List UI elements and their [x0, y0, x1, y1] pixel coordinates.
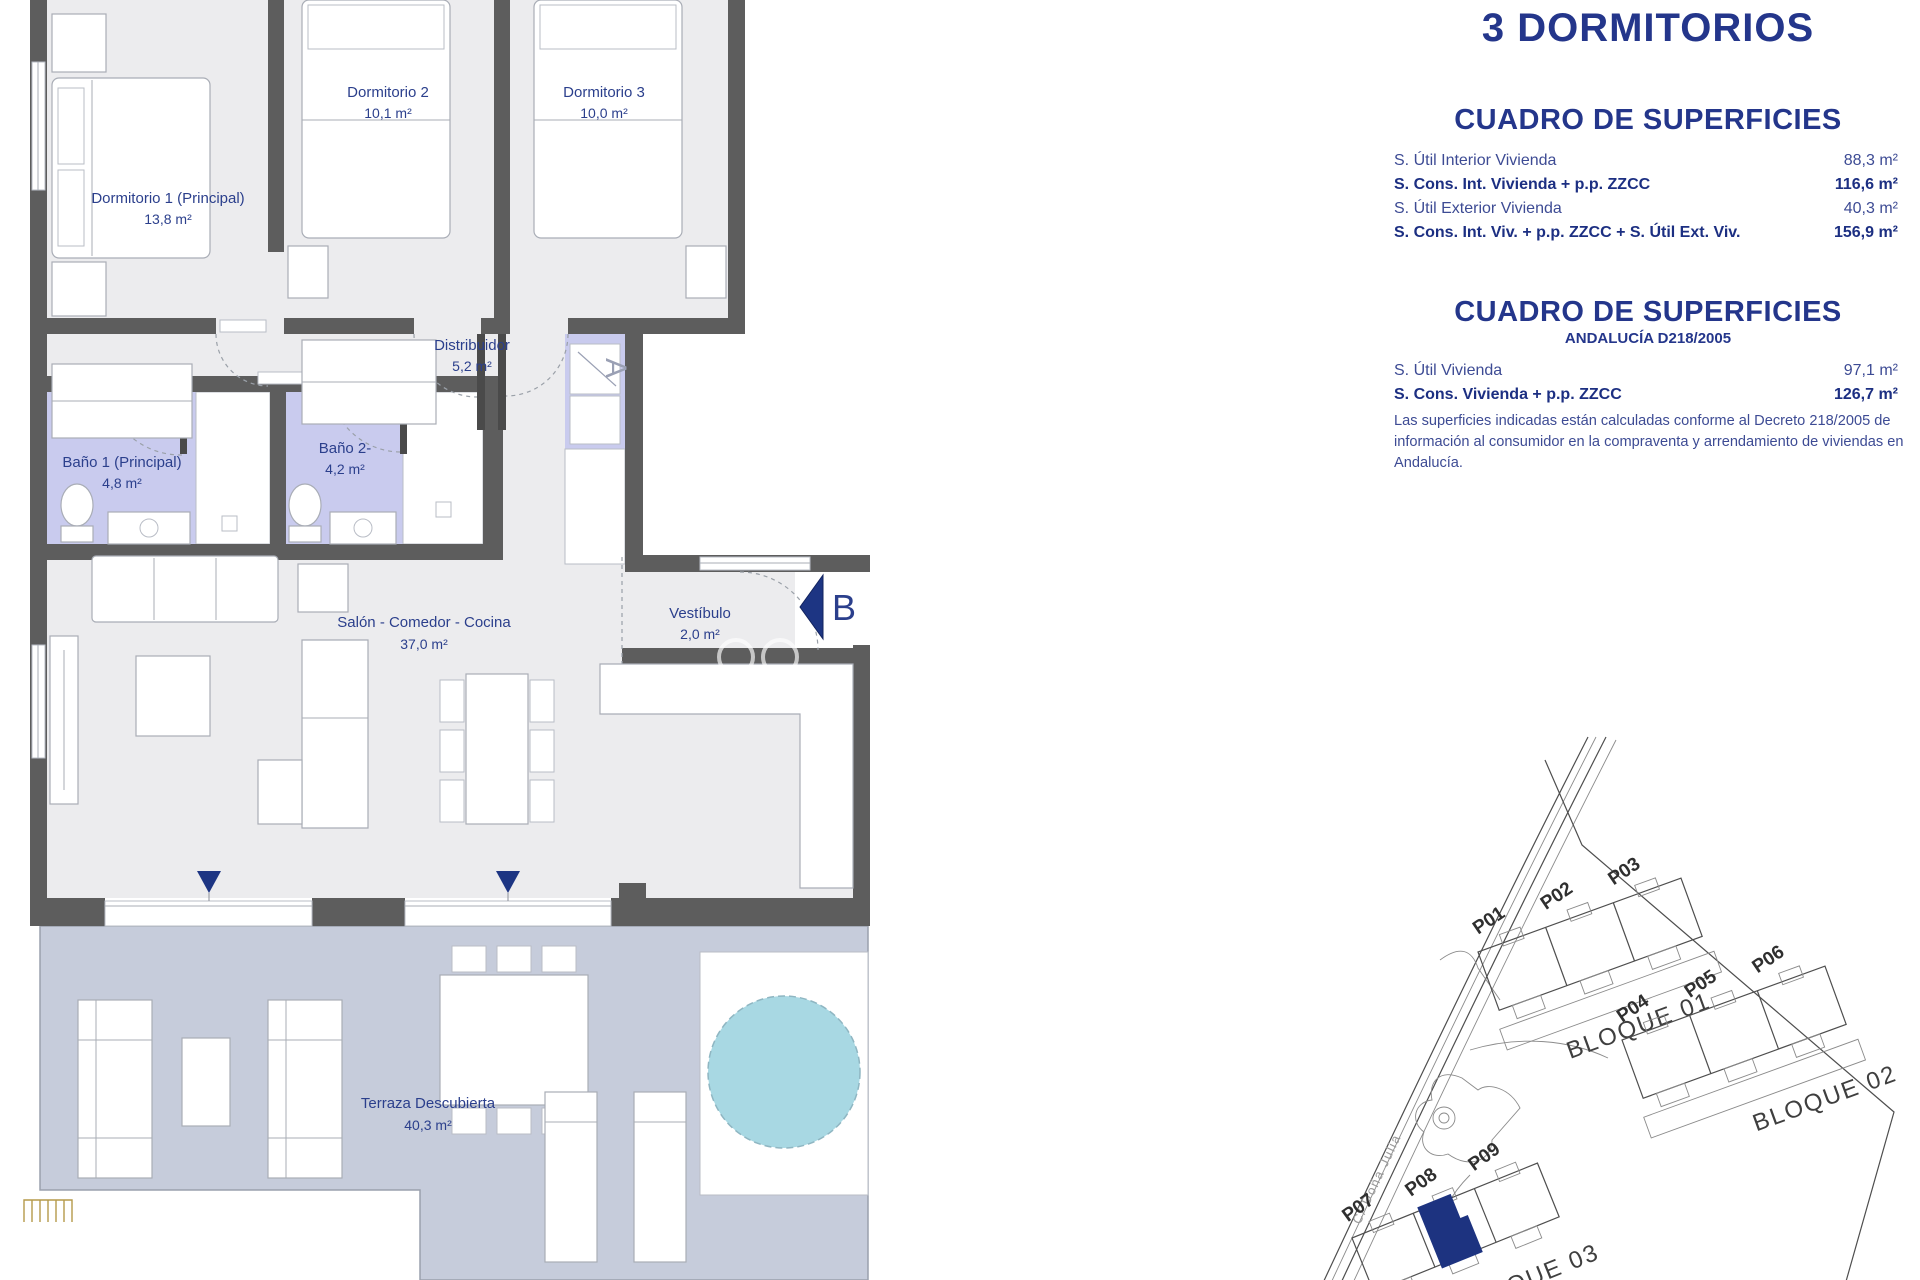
room-area-dormitorio1: 13,8 m² — [144, 211, 192, 227]
surface-table2-heading: CUADRO DE SUPERFICIES — [1392, 296, 1904, 329]
tall-cupboard — [565, 449, 625, 564]
floorplan-sheet: A B Dormitorio 1 (Principal) 13,8 m² Dor… — [0, 0, 1920, 1280]
room-area-salon: 37,0 m² — [400, 636, 448, 652]
bedroom2-furniture — [288, 0, 450, 424]
table-row: S. Útil Exterior Vivienda 40,3 m² — [1392, 197, 1904, 221]
room-label-dormitorio3: Dormitorio 3 — [563, 84, 645, 101]
page-title: 3 DORMITORIOS — [1392, 6, 1904, 51]
row-label: S. Cons. Int. Viv. + p.p. ZZCC + S. Útil… — [1394, 224, 1740, 242]
room-area-bano1: 4,8 m² — [102, 475, 142, 491]
room-label-terraza: Terraza Descubierta — [361, 1095, 496, 1112]
unit-label: P08 — [1402, 1164, 1442, 1201]
row-value: 156,9 m² — [1834, 224, 1898, 242]
room-area-dormitorio3: 10,0 m² — [580, 105, 628, 121]
parcel-boundary — [1545, 760, 1894, 1280]
table-row: S. Cons. Int. Viv. + p.p. ZZCC + S. Útil… — [1392, 221, 1904, 245]
row-label: S. Útil Vivienda — [1394, 362, 1502, 380]
surface-table2-subheading: ANDALUCÍA D218/2005 — [1392, 330, 1904, 347]
building-bloque-01: P01 P02 P03 BLOQUE 01 — [1459, 839, 1734, 1084]
stairs-icon — [24, 1200, 72, 1222]
room-area-terraza: 40,3 m² — [404, 1117, 452, 1133]
table-row: S. Cons. Vivienda + p.p. ZZCC 126,7 m² — [1392, 383, 1904, 407]
room-label-distribuidor: Distribuidor — [434, 337, 510, 354]
unit-label: P09 — [1465, 1139, 1505, 1176]
highlighted-unit-p08[interactable] — [1417, 1191, 1483, 1269]
walkways — [1438, 951, 1608, 1238]
row-label: S. Útil Exterior Vivienda — [1394, 200, 1562, 218]
amenity-pool — [1416, 1075, 1520, 1162]
surface-table-heading: CUADRO DE SUPERFICIES — [1392, 104, 1904, 137]
room-area-dormitorio2: 10,1 m² — [364, 105, 412, 121]
row-value: 126,7 m² — [1834, 386, 1898, 404]
room-label-bano2: Baño 2- — [319, 440, 372, 457]
row-label: S. Cons. Int. Vivienda + p.p. ZZCC — [1394, 176, 1650, 194]
site-plan: C/ Doña Julia P01 — [1270, 735, 1920, 1280]
table-row: S. Útil Interior Vivienda 88,3 m² — [1392, 149, 1904, 173]
section-b-label: B — [832, 587, 856, 628]
room-area-vestibulo: 2,0 m² — [680, 626, 720, 642]
row-value: 88,3 m² — [1844, 152, 1898, 170]
surface-table-andalucia: CUADRO DE SUPERFICIES ANDALUCÍA D218/200… — [1392, 296, 1904, 474]
plunge-pool — [708, 996, 860, 1148]
room-label-vestibulo: Vestíbulo — [669, 605, 731, 622]
legal-note: Las superficies indicadas están calculad… — [1392, 411, 1904, 474]
room-label-dormitorio2: Dormitorio 2 — [347, 84, 429, 101]
row-value: 116,6 m² — [1835, 176, 1898, 194]
row-value: 40,3 m² — [1844, 200, 1898, 218]
row-label: S. Cons. Vivienda + p.p. ZZCC — [1394, 386, 1622, 404]
table-row: S. Cons. Int. Vivienda + p.p. ZZCC 116,6… — [1392, 173, 1904, 197]
room-label-salon: Salón - Comedor - Cocina — [337, 614, 511, 631]
row-value: 97,1 m² — [1844, 362, 1898, 380]
table-row: S. Útil Vivienda 97,1 m² — [1392, 359, 1904, 383]
floor-plan: A B Dormitorio 1 (Principal) 13,8 m² Dor… — [0, 0, 880, 1280]
room-area-bano2: 4,2 m² — [325, 461, 365, 477]
room-label-dormitorio1: Dormitorio 1 (Principal) — [91, 190, 244, 207]
building-bloque-03: P07 P08 P09 BLOQUE 03 — [1335, 1117, 1603, 1280]
surface-table: CUADRO DE SUPERFICIES S. Útil Interior V… — [1392, 104, 1904, 245]
room-area-distribuidor: 5,2 m² — [452, 358, 492, 374]
room-label-bano1: Baño 1 (Principal) — [62, 454, 181, 471]
info-panel: 3 DORMITORIOS CUADRO DE SUPERFICIES S. Ú… — [1392, 0, 1904, 51]
row-label: S. Útil Interior Vivienda — [1394, 152, 1556, 170]
